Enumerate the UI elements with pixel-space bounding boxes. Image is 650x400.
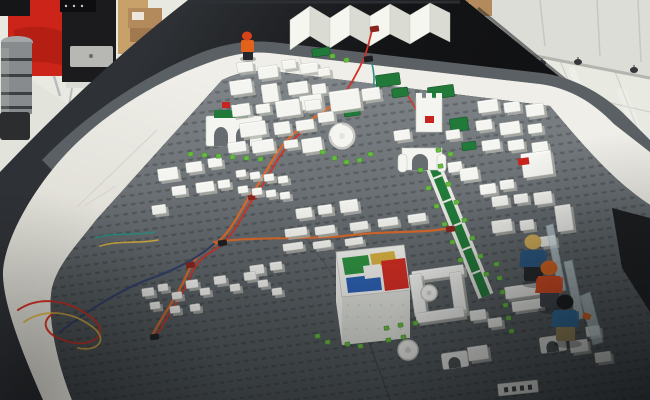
scene-canvas [0,0,650,400]
light-shadow-overlay [0,0,650,400]
corner-shadow [0,0,650,400]
lego-city-photo [0,0,650,400]
